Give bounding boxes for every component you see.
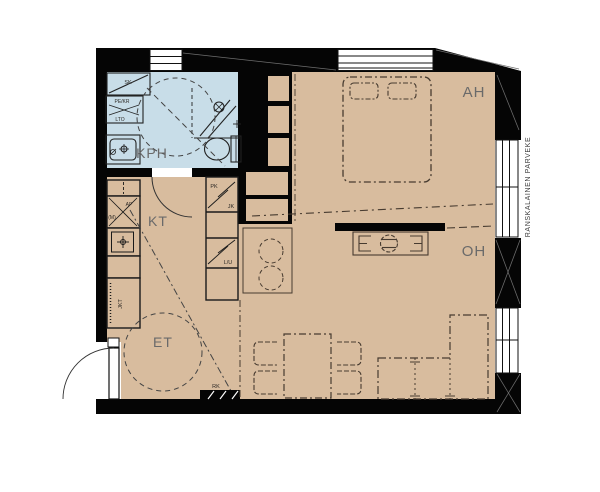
tall-cabinet-column (206, 177, 238, 300)
label-ap: AP (126, 202, 133, 208)
label-m: (M) (108, 215, 116, 221)
room-label-kt: KT (148, 213, 168, 229)
electrical-panel (200, 390, 240, 400)
closet-compartment (268, 76, 289, 101)
room-label-oh: OH (462, 243, 487, 260)
label-pe-kr: PE/KR (114, 99, 129, 105)
window-french-balcony-lower (496, 308, 518, 373)
label-pk: PK (210, 184, 218, 190)
balcony-label: RANSKALAINEN PARVEKE (525, 137, 532, 237)
wall-stub-living (335, 223, 445, 231)
room-label-et: ET (153, 334, 173, 350)
label-jkt: JKT (118, 298, 124, 308)
wall-bathroom-south-right (192, 168, 238, 177)
counter-cabinet (107, 256, 140, 278)
label-lu: L/U (224, 260, 233, 266)
wall-bathroom-south-left (107, 168, 152, 177)
closet-compartment (268, 106, 289, 133)
room-label-ah: AH (463, 84, 486, 101)
door-leaf (109, 348, 119, 399)
closet-compartment (246, 172, 288, 195)
wall-bottom (96, 399, 521, 414)
label-rk: RK (212, 384, 220, 390)
floor-bedroom-living (292, 72, 495, 399)
door-jamb (108, 338, 119, 347)
window-top-small (150, 50, 182, 71)
label-sk: SK (124, 80, 132, 86)
label-lto: LTO (115, 117, 124, 123)
room-label-kph: KPH (136, 145, 168, 161)
floor-bathroom (107, 72, 238, 168)
floor-plan-image: KPH KT ET AH OH SK PE/KR LTO AP (M) JKT … (0, 0, 600, 492)
window-french-balcony-upper (496, 140, 518, 237)
wall-left (96, 48, 107, 342)
window-top-large (338, 50, 433, 71)
closet-compartment (246, 199, 288, 221)
label-jk: JK (228, 204, 235, 210)
floor-plan-svg: KPH KT ET AH OH SK PE/KR LTO AP (M) JKT … (0, 0, 600, 492)
closet-compartment (268, 138, 289, 166)
